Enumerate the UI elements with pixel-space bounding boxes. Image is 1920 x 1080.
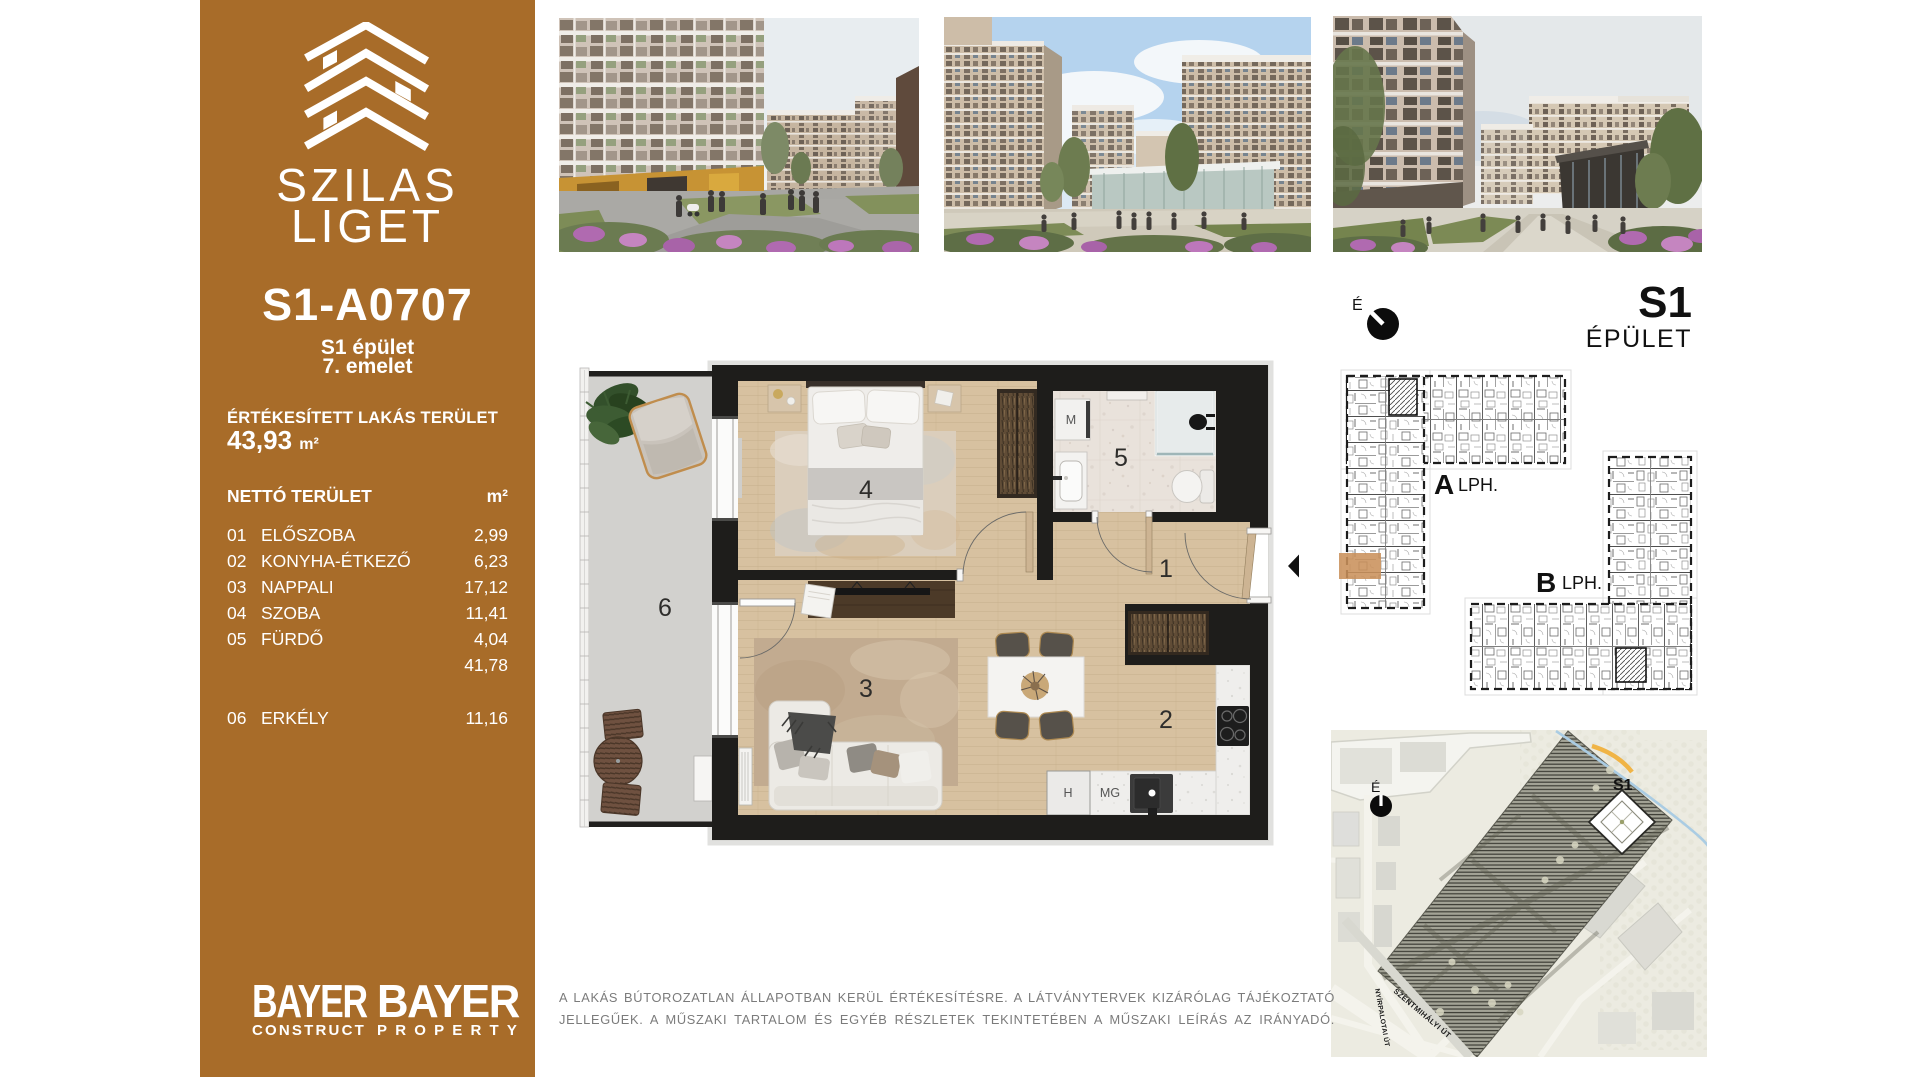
svg-text:B: B	[1536, 567, 1556, 598]
svg-text:6: 6	[658, 594, 672, 622]
svg-text:2: 2	[1159, 706, 1173, 734]
svg-text:É: É	[1371, 779, 1380, 795]
svg-text:3: 3	[859, 675, 873, 703]
svg-text:M: M	[1066, 413, 1076, 427]
svg-text:MG: MG	[1100, 786, 1120, 800]
svg-text:S1: S1	[1613, 777, 1633, 794]
svg-text:1: 1	[1159, 555, 1173, 583]
svg-text:H: H	[1063, 786, 1072, 800]
svg-text:LPH.: LPH.	[1458, 475, 1498, 495]
svg-text:5: 5	[1114, 444, 1128, 472]
svg-text:4: 4	[859, 476, 873, 504]
svg-text:LPH.: LPH.	[1562, 573, 1602, 593]
svg-text:A: A	[1434, 469, 1454, 500]
svg-text:É: É	[1352, 295, 1363, 314]
